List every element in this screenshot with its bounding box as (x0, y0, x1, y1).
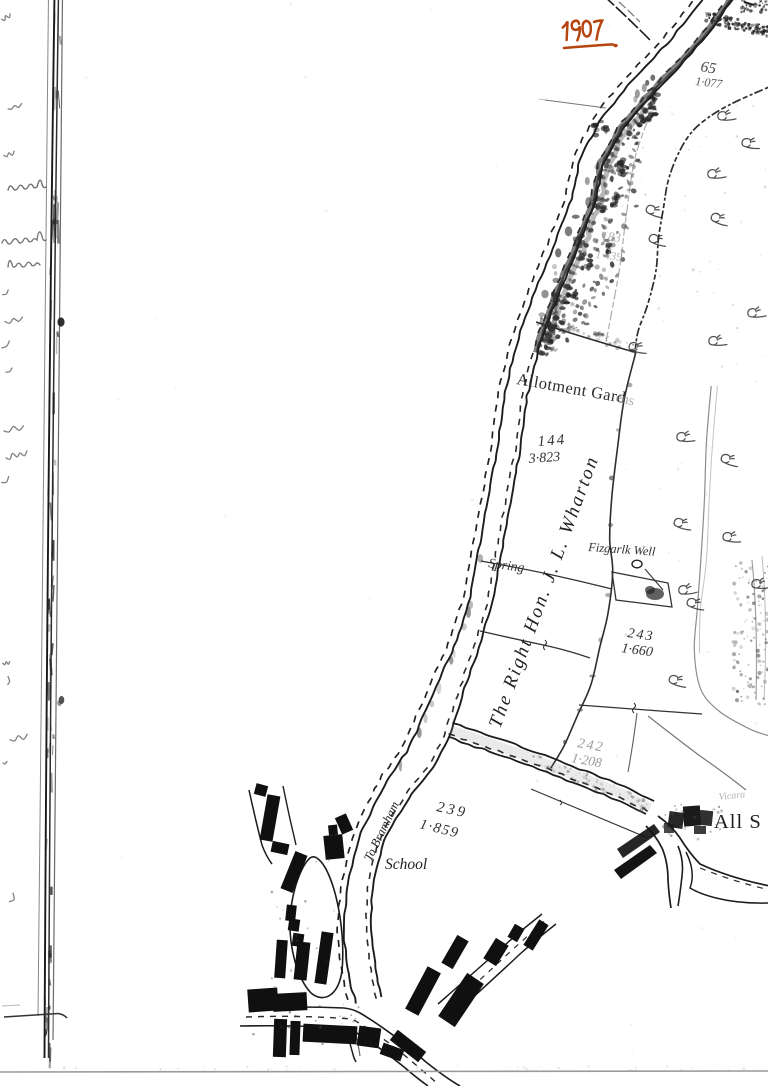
svg-text:All S: All S (714, 811, 762, 833)
svg-text:School: School (385, 856, 427, 873)
svg-text:144: 144 (537, 432, 567, 450)
svg-text:183: 183 (601, 228, 622, 245)
svg-text:1·077: 1·077 (695, 74, 724, 91)
svg-text:1·439: 1·439 (595, 247, 623, 264)
svg-text:3·823: 3·823 (527, 450, 560, 467)
